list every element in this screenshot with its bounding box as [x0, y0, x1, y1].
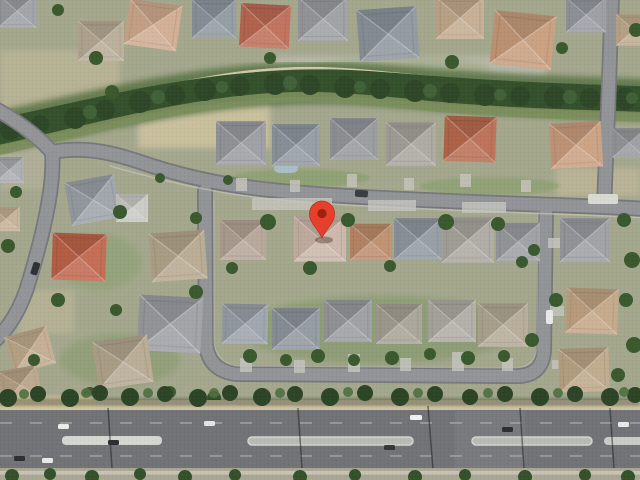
map-viewport[interactable] [0, 0, 640, 480]
pin-hole [317, 209, 326, 218]
pin-shadow [315, 237, 333, 244]
satellite-image[interactable] [0, 0, 640, 480]
